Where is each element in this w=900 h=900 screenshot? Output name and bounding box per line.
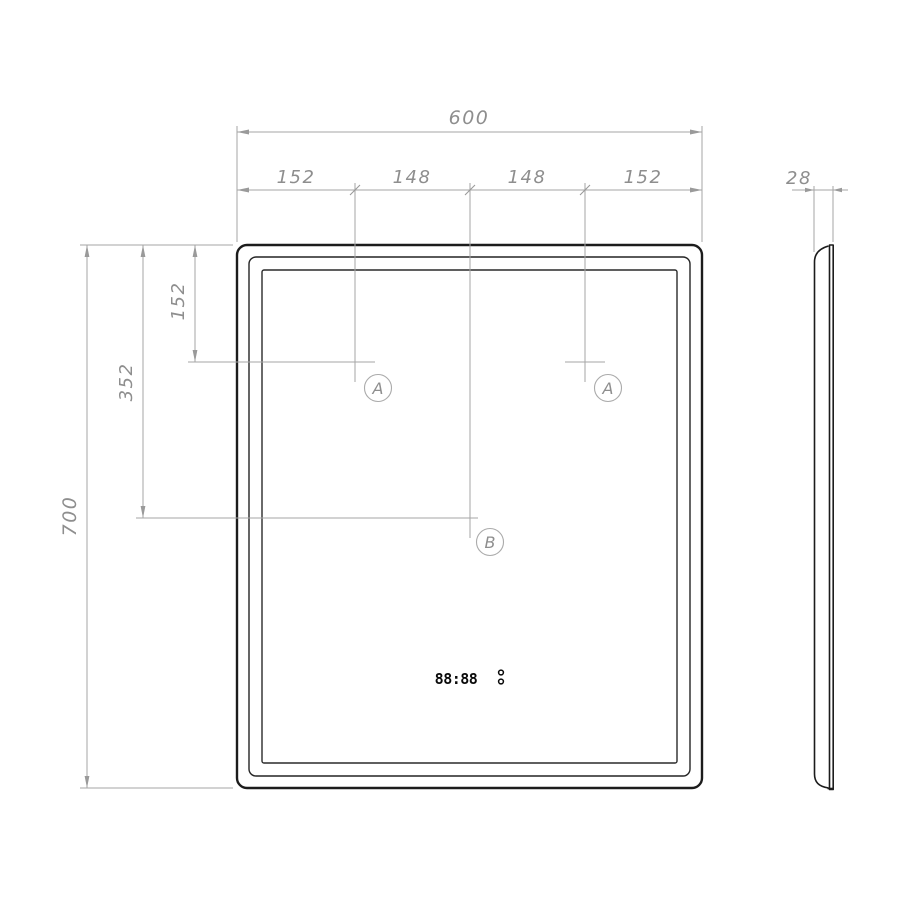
callout-a-right: A xyxy=(595,375,622,402)
callouts-group: A A B xyxy=(365,362,622,556)
dimension-label-segment-2: 148 xyxy=(393,167,432,188)
arrowhead xyxy=(237,188,249,193)
technical-drawing-canvas: 88:88 600 152 148 148 152 xyxy=(0,0,900,900)
dimension-label-total-height: 700 xyxy=(59,496,81,537)
mirror-drawing: 88:88 600 152 148 148 152 xyxy=(0,0,900,900)
callout-letter-a-right: A xyxy=(602,379,614,398)
dimension-label-depth: 28 xyxy=(786,168,812,189)
sensor-dot-top xyxy=(499,670,504,675)
callout-letter-a-left: A xyxy=(372,379,384,398)
side-view-back-panel xyxy=(815,246,829,788)
callout-letter-b: B xyxy=(485,533,496,552)
dimension-label-top-height: 152 xyxy=(168,282,189,321)
arrowhead xyxy=(141,506,146,518)
sensor-dot-bottom xyxy=(499,679,504,684)
side-view-mirror-face xyxy=(830,245,834,790)
dimension-width-group: 600 152 148 148 152 xyxy=(237,107,702,538)
arrowhead xyxy=(141,245,146,257)
callout-a-left: A xyxy=(365,375,392,402)
dimension-depth-group: 28 xyxy=(786,168,848,252)
side-view xyxy=(815,245,834,790)
arrowhead xyxy=(85,776,90,788)
arrowhead xyxy=(193,245,198,257)
touch-sensor-icon xyxy=(499,670,504,684)
dimension-label-segment-1: 152 xyxy=(277,167,316,188)
dimension-label-segment-3: 148 xyxy=(508,167,547,188)
dimension-label-mid-height: 352 xyxy=(116,363,137,402)
dimension-height-group: 700 352 152 xyxy=(59,245,478,788)
arrowhead xyxy=(193,350,198,362)
callout-b: B xyxy=(477,529,504,556)
dimension-label-segment-4: 152 xyxy=(624,167,663,188)
arrowhead xyxy=(690,130,702,135)
clock-display: 88:88 xyxy=(435,670,478,688)
arrowhead xyxy=(833,188,842,192)
arrowhead xyxy=(690,188,702,193)
arrowhead xyxy=(237,130,249,135)
dimension-label-total-width: 600 xyxy=(449,107,490,129)
arrowhead xyxy=(85,245,90,257)
